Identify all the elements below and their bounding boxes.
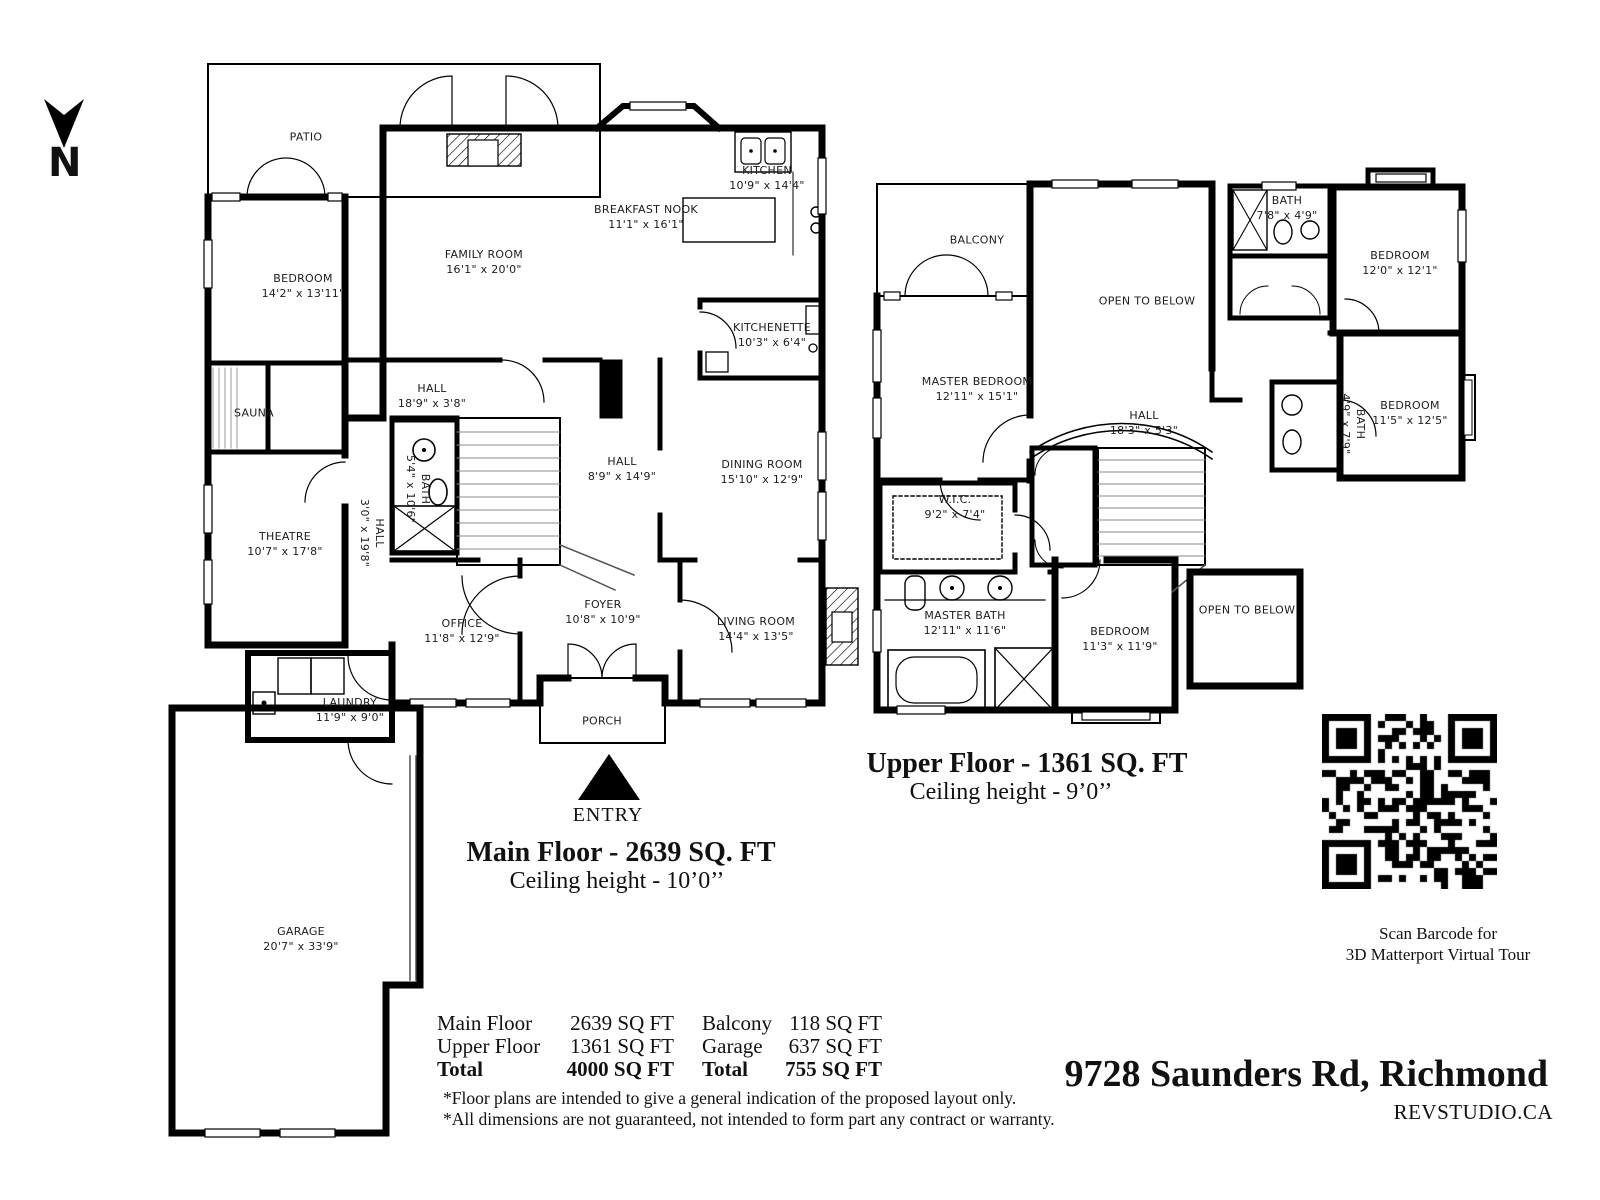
room-label-bedroom-upper-c: BEDROOM 11'3" x 11'9" (1082, 625, 1158, 655)
area-summary-right: Balcony118 SQ FT Garage637 SQ FT Total75… (702, 1012, 882, 1081)
room-label-kitchen: KITCHEN 10'9" x 14'4" (729, 164, 805, 194)
room-label-dining-room: DINING ROOM 15'10" x 12'9" (721, 458, 804, 488)
area-summary-left: Main Floor2639 SQ FT Upper Floor1361 SQ … (437, 1012, 674, 1081)
room-label-open-to-below-a: OPEN TO BELOW (1099, 295, 1196, 310)
summary-row: Main Floor2639 SQ FT (437, 1012, 674, 1035)
area-summary: Main Floor2639 SQ FT Upper Floor1361 SQ … (437, 1012, 882, 1081)
main-floor-title: Main Floor - 2639 SQ. FT (466, 837, 775, 869)
upper-floor-ceiling: Ceiling height - 9’0’’ (910, 779, 1113, 806)
room-label-wic: W.I.C. 9'2" x 7'4" (925, 493, 986, 523)
qr-caption-line-2: 3D Matterport Virtual Tour (1346, 945, 1531, 965)
room-label-office: OFFICE 11'8" x 12'9" (424, 617, 500, 647)
room-label-master-bedroom: MASTER BEDROOM 12'11" x 15'1" (922, 375, 1032, 405)
room-label-open-to-below-b: OPEN TO BELOW (1199, 604, 1296, 619)
room-label-sauna: SAUNA (234, 407, 274, 422)
floor-plan-page: N PATIO BEDROOM 14'2" x 13'11" FAMILY RO… (0, 0, 1600, 1200)
disclaimer-line-1: *Floor plans are intended to give a gene… (443, 1088, 1016, 1109)
qr-caption-line-1: Scan Barcode for (1379, 924, 1497, 944)
room-label-garage: GARAGE 20'7" x 33'9" (263, 925, 339, 955)
disclaimer-line-2: *All dimensions are not guaranteed, not … (443, 1109, 1055, 1130)
room-label-bedroom-main: BEDROOM 14'2" x 13'11" (262, 272, 345, 302)
summary-row: Balcony118 SQ FT (702, 1012, 882, 1035)
north-label: N (48, 140, 81, 186)
summary-row: Upper Floor1361 SQ FT (437, 1035, 674, 1058)
main-floor-ceiling: Ceiling height - 10’0’’ (510, 868, 725, 895)
property-address: 9728 Saunders Rd, Richmond (1064, 1052, 1548, 1096)
room-label-kitchenette: KITCHENETTE 10'3" x 6'4" (733, 321, 811, 351)
qr-code (1322, 714, 1497, 889)
room-label-family-room: FAMILY ROOM 16'1" x 20'0" (445, 248, 523, 278)
room-label-hall-c: HALL 3'0" x 19'8" (356, 499, 386, 567)
room-label-foyer: FOYER 10'8" x 10'9" (565, 598, 641, 628)
room-label-hall-b: HALL 8'9" x 14'9" (588, 455, 656, 485)
room-label-balcony: BALCONY (950, 234, 1005, 249)
room-label-master-bath: MASTER BATH 12'11" x 11'6" (924, 609, 1007, 639)
entry-arrow-icon (578, 754, 640, 800)
room-label-bath-upper-a: BATH 7'8" x 4'9" (1257, 194, 1318, 224)
main-floor-walls (172, 64, 858, 1137)
room-label-laundry: LAUNDRY 11'9" x 9'0" (316, 696, 384, 726)
entry-label: ENTRY (573, 804, 644, 827)
room-label-patio: PATIO (290, 131, 323, 146)
room-label-bedroom-upper-a: BEDROOM 12'0" x 12'1" (1362, 249, 1438, 279)
room-label-porch: PORCH (582, 715, 622, 730)
summary-row-total: Total4000 SQ FT (437, 1058, 674, 1081)
room-label-breakfast-nook: BREAKFAST NOOK 11'1" x 16'1" (594, 203, 698, 233)
room-label-living-room: LIVING ROOM 14'4" x 13'5" (717, 615, 795, 645)
room-label-bath-upper-b: BATH 4'9" x 7'9" (1337, 394, 1367, 455)
upper-floor-title: Upper Floor - 1361 SQ. FT (867, 748, 1188, 780)
summary-row: Garage637 SQ FT (702, 1035, 882, 1058)
brand-label: REVSTUDIO.CA (1394, 1100, 1553, 1125)
room-label-hall-upper: HALL 18'3" x 5'3" (1110, 409, 1178, 439)
room-label-theatre: THEATRE 10'7" x 17'8" (247, 530, 323, 560)
room-label-hall-a: HALL 18'9" x 3'8" (398, 382, 466, 412)
summary-row-total: Total755 SQ FT (702, 1058, 882, 1081)
room-label-bath-main: BATH 5'4" x 10'6" (402, 455, 432, 523)
room-label-bedroom-upper-b: BEDROOM 11'5" x 12'5" (1372, 399, 1448, 429)
